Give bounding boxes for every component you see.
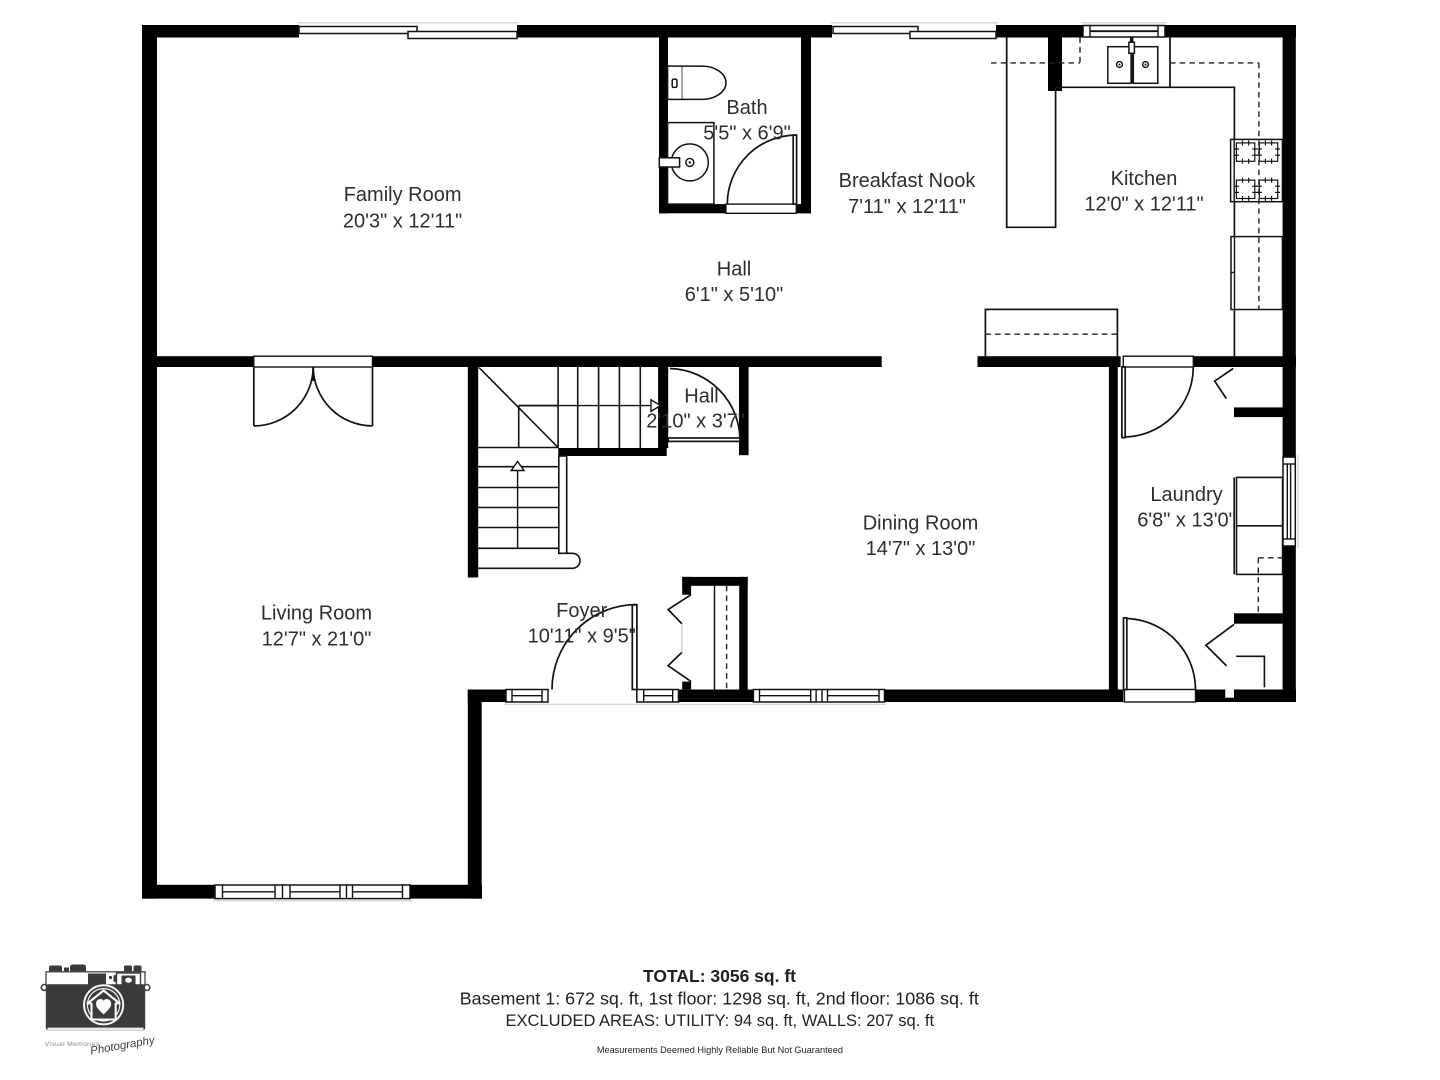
svg-text:5'5" x 6'9": 5'5" x 6'9" (703, 123, 790, 145)
svg-text:TOTAL: 3056 sq. ft: TOTAL: 3056 sq. ft (643, 966, 796, 986)
svg-text:Hall: Hall (717, 259, 751, 281)
svg-text:2'10" x 3'7": 2'10" x 3'7" (646, 411, 745, 433)
svg-text:Breakfast Nook: Breakfast Nook (839, 170, 977, 192)
svg-text:Measurements Deemed Highly Rel: Measurements Deemed Highly Reliable But … (597, 1045, 843, 1055)
svg-text:Dining Room: Dining Room (863, 513, 979, 535)
svg-text:EXCLUDED AREAS: UTILITY: 94 sq: EXCLUDED AREAS: UTILITY: 94 sq. ft, WALL… (506, 1012, 935, 1030)
svg-text:12'7" x 21'0": 12'7" x 21'0" (262, 629, 372, 651)
svg-text:14'7" x 13'0": 14'7" x 13'0" (866, 538, 976, 560)
svg-text:12'0" x 12'11": 12'0" x 12'11" (1084, 194, 1203, 216)
svg-text:Family Room: Family Room (344, 184, 462, 206)
svg-text:Laundry: Laundry (1150, 484, 1222, 506)
svg-text:Foyer: Foyer (556, 600, 607, 622)
svg-text:Hall: Hall (684, 386, 718, 408)
svg-text:Bath: Bath (726, 97, 767, 119)
svg-text:6'8" x 13'0": 6'8" x 13'0" (1137, 510, 1236, 532)
svg-text:6'1" x 5'10": 6'1" x 5'10" (685, 284, 784, 306)
svg-text:Kitchen: Kitchen (1111, 168, 1178, 190)
svg-text:Basement 1: 672 sq. ft, 1st fl: Basement 1: 672 sq. ft, 1st floor: 1298 … (460, 989, 979, 1009)
svg-text:Living Room: Living Room (261, 603, 372, 625)
svg-text:20'3" x 12'11": 20'3" x 12'11" (343, 211, 462, 233)
svg-text:7'11" x 12'11": 7'11" x 12'11" (848, 196, 966, 218)
svg-text:10'11" x 9'5": 10'11" x 9'5" (528, 626, 636, 648)
